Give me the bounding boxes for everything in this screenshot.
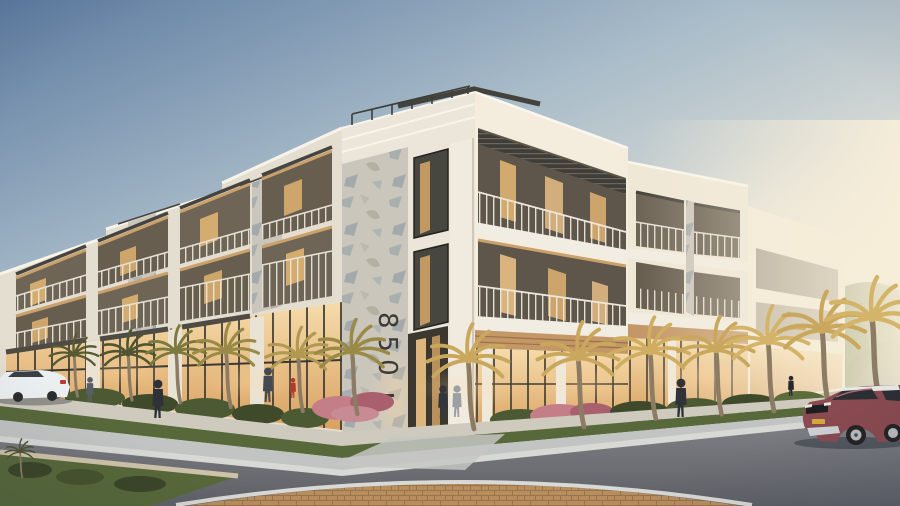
scene-svg: 850 xyxy=(0,0,900,506)
vignette xyxy=(0,0,900,506)
rendering-canvas: 850 xyxy=(0,0,900,506)
